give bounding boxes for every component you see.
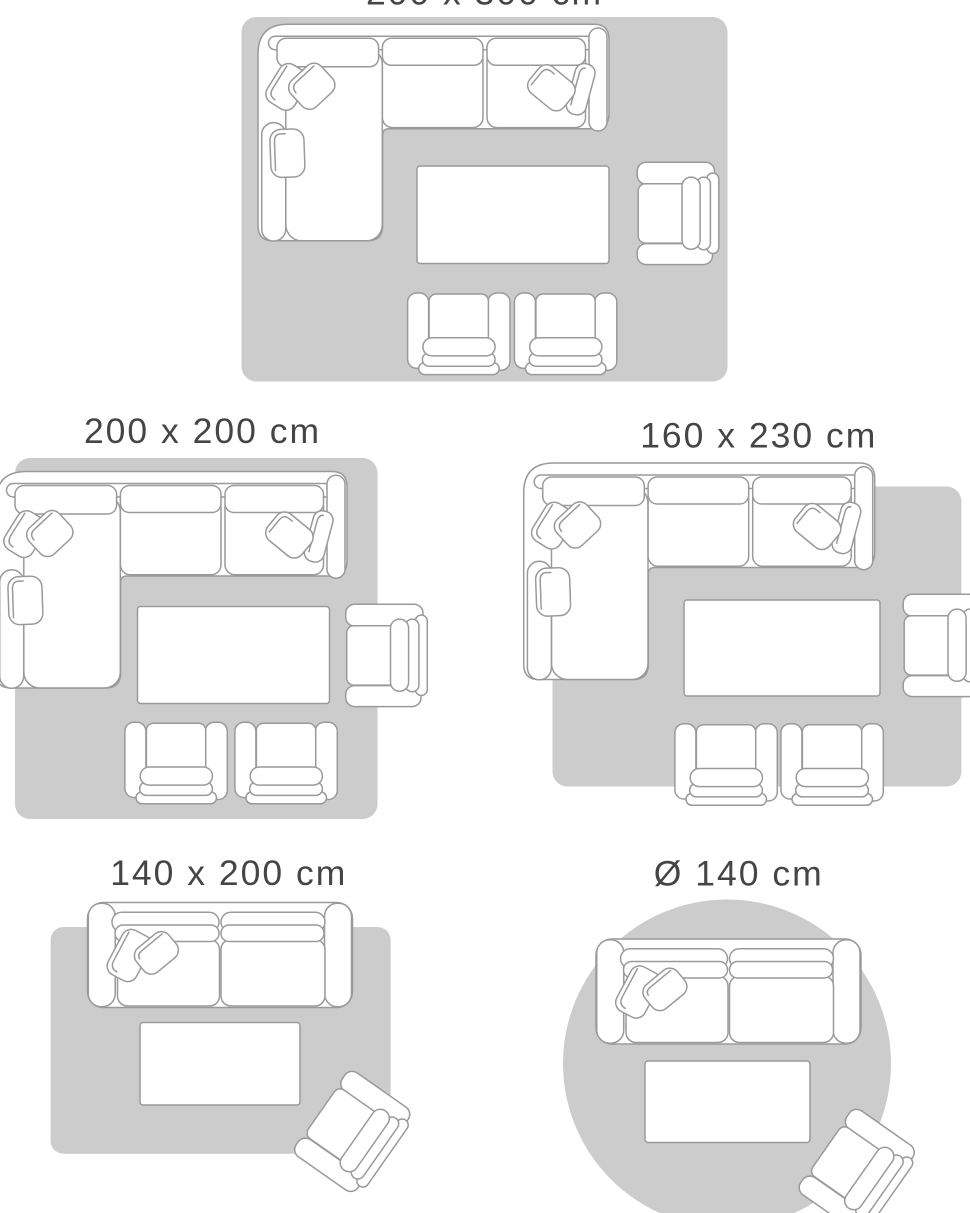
svg-text:140 x 200 cm: 140 x 200 cm [110,853,347,893]
svg-text:Ø 140 cm: Ø 140 cm [654,854,824,894]
svg-text:200 x 200 cm: 200 x 200 cm [84,411,321,451]
svg-text:160 x 230 cm: 160 x 230 cm [640,416,877,456]
svg-text:200 x 300 cm: 200 x 300 cm [366,0,603,13]
